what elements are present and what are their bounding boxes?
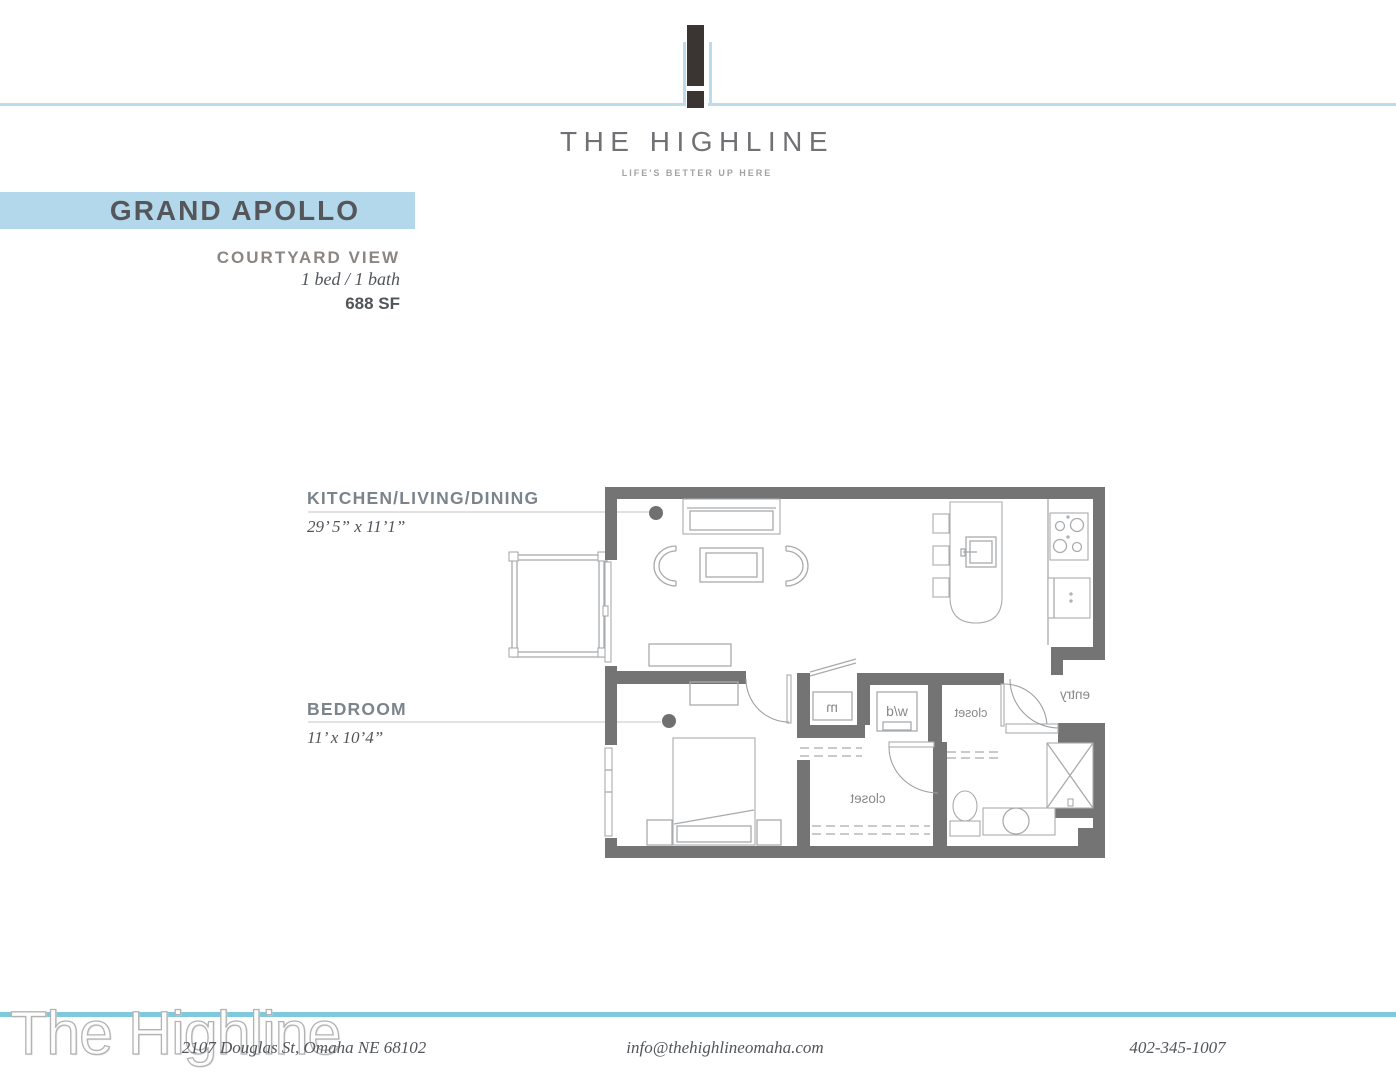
leader-dot-kitchen: [649, 506, 663, 520]
leader-dot-bedroom: [662, 714, 676, 728]
unit-name: GRAND APOLLO: [0, 192, 415, 229]
brand-name: THE HIGHLINE: [397, 126, 997, 158]
bedroom-door: [746, 675, 791, 723]
nightstand-left: [647, 820, 672, 845]
logo-mark-lower: [687, 91, 704, 108]
vanity-sink: [983, 808, 1055, 835]
floor-plan: m w/d closet closet entry: [0, 478, 1120, 876]
balcony: [509, 552, 607, 657]
entry-door: [1006, 679, 1059, 733]
walkin-closet-label: closet: [850, 791, 886, 806]
bedroom-window: [605, 748, 612, 836]
shower: [1047, 743, 1093, 808]
unit-name-banner: GRAND APOLLO: [0, 192, 415, 229]
armchair-left: [654, 546, 676, 586]
footer-email: info@thehighlineomaha.com: [610, 1038, 840, 1058]
logo-mark-upper: [687, 25, 704, 86]
dresser: [690, 682, 738, 705]
brand-tagline: LIFE'S BETTER UP HERE: [547, 168, 847, 178]
unit-config: 1 bed / 1 bath: [100, 269, 400, 290]
top-divider-line-left: [0, 103, 684, 106]
unit-area: 688 SF: [100, 294, 400, 314]
refrigerator: [1048, 578, 1090, 618]
hall-closet-label: closet: [954, 706, 987, 720]
bed: [673, 738, 755, 845]
footer-address: 2107 Douglas St, Omaha NE 68102: [163, 1038, 445, 1058]
media-console: [649, 644, 731, 666]
armchair-right: [786, 546, 808, 586]
entry-label: entry: [1060, 687, 1090, 702]
mechanical-label: m: [826, 699, 838, 715]
unit-view: COURTYARD VIEW: [100, 248, 400, 268]
logo-blue-vline-right: [709, 42, 712, 106]
washer-dryer-label: w/d: [886, 703, 909, 719]
toilet: [950, 791, 980, 836]
top-divider-line-right: [708, 103, 1396, 106]
sofa: [683, 499, 780, 534]
bar-stools: [933, 514, 949, 597]
floorplan-flyer-page: THE HIGHLINE LIFE'S BETTER UP HERE GRAND…: [0, 0, 1396, 1080]
footer-phone: 402-345-1007: [1115, 1038, 1240, 1058]
coffee-table: [700, 548, 763, 582]
nightstand-right: [757, 820, 781, 845]
hall-closet-door: [947, 684, 1047, 758]
logo-blue-vline-left: [683, 42, 686, 106]
range-cooktop: [1050, 513, 1088, 560]
